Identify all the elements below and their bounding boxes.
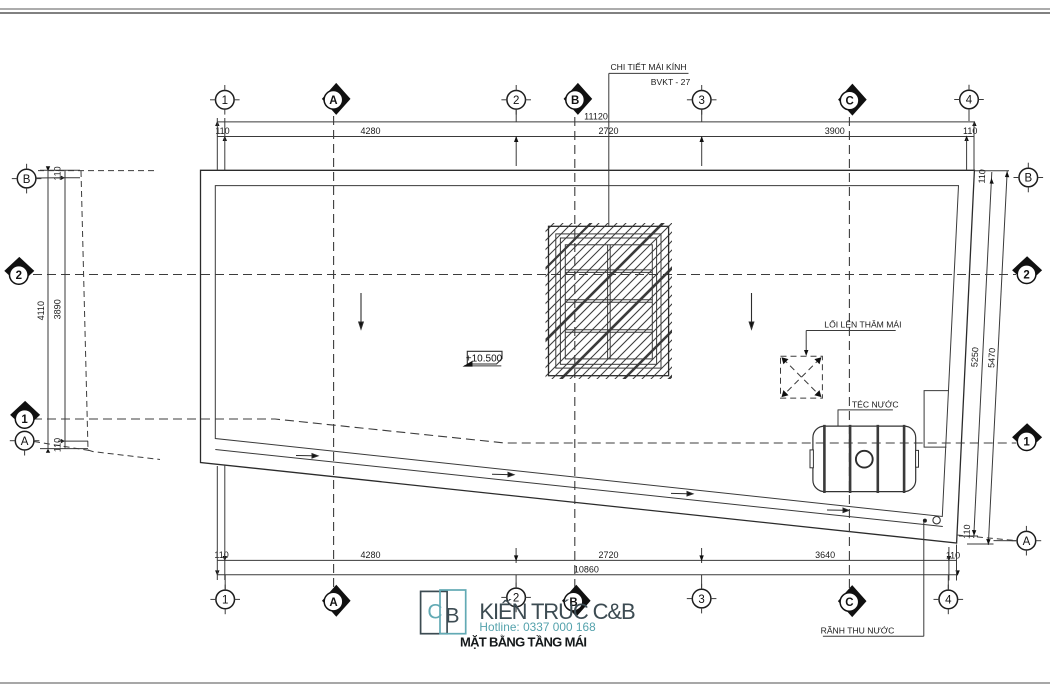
svg-text:A: A (329, 597, 337, 609)
svg-text:B: B (23, 174, 31, 186)
svg-text:B: B (445, 605, 459, 628)
svg-text:3640: 3640 (815, 550, 835, 560)
svg-text:1: 1 (222, 595, 228, 607)
svg-text:CHI TIẾT MÁI KÍNH: CHI TIẾT MÁI KÍNH (610, 62, 686, 72)
svg-text:TÉC NƯỚC: TÉC NƯỚC (852, 399, 899, 409)
svg-text:C: C (427, 600, 442, 623)
svg-text:4: 4 (945, 595, 952, 607)
svg-text:C: C (845, 597, 853, 609)
svg-text:1: 1 (1023, 436, 1030, 448)
svg-text:1: 1 (21, 414, 28, 426)
svg-text:Hotline: 0337 000 168: Hotline: 0337 000 168 (479, 620, 596, 634)
svg-text:3890: 3890 (52, 299, 62, 319)
svg-text:4: 4 (966, 95, 973, 107)
svg-text:4110: 4110 (36, 301, 46, 320)
svg-text:BVKT - 27: BVKT - 27 (651, 77, 691, 87)
svg-text:110: 110 (963, 126, 977, 136)
svg-text:110: 110 (977, 169, 988, 184)
svg-text:MẶT BẰNG TẦNG MÁI: MẶT BẰNG TẦNG MÁI (460, 635, 587, 650)
svg-text:C: C (845, 96, 853, 108)
svg-text:3: 3 (698, 594, 704, 606)
svg-text:A: A (329, 95, 337, 107)
svg-text:3900: 3900 (825, 126, 845, 136)
svg-text:5470: 5470 (986, 348, 997, 368)
svg-text:LỐI LÊN THĂM MÁI: LỐI LÊN THĂM MÁI (824, 319, 901, 330)
svg-text:4280: 4280 (360, 126, 380, 136)
svg-text:RÃNH THU NƯỚC: RÃNH THU NƯỚC (821, 625, 895, 635)
svg-text:B: B (571, 95, 579, 107)
svg-text:B: B (1024, 173, 1032, 185)
svg-text:110: 110 (214, 550, 228, 560)
svg-text:5250: 5250 (969, 347, 980, 367)
svg-text:110: 110 (961, 524, 972, 539)
svg-text:11120: 11120 (584, 111, 608, 121)
svg-text:4280: 4280 (360, 550, 380, 560)
svg-text:2720: 2720 (598, 550, 618, 560)
svg-text:2: 2 (1023, 269, 1029, 281)
svg-text:1: 1 (222, 95, 228, 107)
svg-text:3: 3 (698, 95, 704, 107)
svg-text:A: A (21, 436, 29, 448)
svg-text:2: 2 (513, 95, 519, 107)
svg-text:A: A (1023, 536, 1031, 548)
svg-text:2: 2 (16, 270, 22, 282)
svg-text:10860: 10860 (574, 565, 599, 575)
